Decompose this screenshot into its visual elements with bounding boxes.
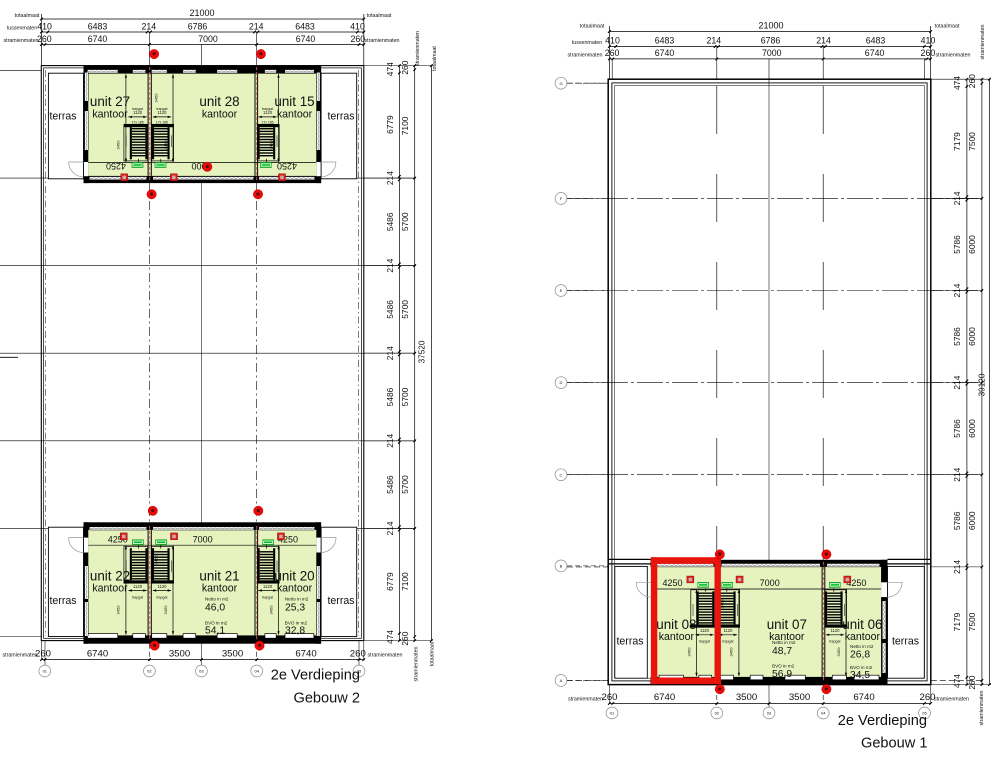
svg-text:kantoor: kantoor <box>659 631 695 643</box>
svg-text:54,1: 54,1 <box>205 626 225 637</box>
svg-text:4250: 4250 <box>106 161 126 171</box>
svg-text:3450: 3450 <box>268 140 273 150</box>
svg-text:3450: 3450 <box>154 555 159 565</box>
svg-text:stramienmaten: stramienmaten <box>979 690 985 725</box>
svg-text:260: 260 <box>967 74 977 88</box>
svg-text:B: B <box>560 564 563 569</box>
svg-text:kantoor: kantoor <box>845 631 881 643</box>
svg-text:terras: terras <box>616 636 643 648</box>
svg-text:Netto in m2: Netto in m2 <box>850 644 874 649</box>
svg-text:stramienmaten: stramienmaten <box>567 52 602 58</box>
svg-text:5486: 5486 <box>385 475 395 494</box>
svg-text:BVO in m2: BVO in m2 <box>772 663 795 668</box>
svg-text:7179: 7179 <box>952 612 962 631</box>
svg-text:7000: 7000 <box>198 34 218 44</box>
svg-text:3450: 3450 <box>163 140 168 150</box>
svg-text:260: 260 <box>350 648 366 659</box>
svg-text:21000: 21000 <box>758 21 783 31</box>
svg-text:7100: 7100 <box>400 572 410 591</box>
svg-text:totaalmaat: totaalmaat <box>432 46 438 71</box>
svg-text:kantoor: kantoor <box>202 583 238 595</box>
svg-text:260: 260 <box>605 48 620 58</box>
svg-text:2e Verdieping: 2e Verdieping <box>838 713 927 729</box>
svg-text:tussenmaten: tussenmaten <box>572 40 602 46</box>
svg-text:04: 04 <box>821 711 826 716</box>
svg-text:37520: 37520 <box>417 340 426 363</box>
svg-text:32,8: 32,8 <box>285 626 305 637</box>
svg-text:17x 185: 17x 185 <box>156 120 168 124</box>
svg-text:4250: 4250 <box>662 578 682 588</box>
svg-text:6740: 6740 <box>655 48 675 58</box>
svg-text:6740: 6740 <box>865 48 885 58</box>
svg-text:410: 410 <box>350 21 365 31</box>
svg-text:3450: 3450 <box>116 140 121 150</box>
svg-text:1120: 1120 <box>830 628 840 633</box>
svg-text:34,5: 34,5 <box>850 670 870 681</box>
svg-text:BVO in m2: BVO in m2 <box>850 665 873 670</box>
svg-text:3450: 3450 <box>163 605 168 615</box>
svg-text:46,0: 46,0 <box>205 602 225 613</box>
svg-text:A: A <box>560 678 563 683</box>
svg-text:6779: 6779 <box>385 115 395 134</box>
svg-text:7500: 7500 <box>967 132 977 151</box>
svg-text:stramienmaten: stramienmaten <box>415 31 421 66</box>
svg-text:G: G <box>559 81 562 86</box>
svg-text:Netto in m2: Netto in m2 <box>285 597 309 602</box>
svg-text:D: D <box>560 380 563 385</box>
svg-text:stramienmaten: stramienmaten <box>2 653 37 659</box>
svg-text:totaalmaat: totaalmaat <box>430 641 436 666</box>
svg-text:terras: terras <box>327 111 354 123</box>
svg-text:39120: 39120 <box>978 373 987 396</box>
svg-text:trapgat: trapgat <box>699 640 710 644</box>
svg-text:214: 214 <box>816 36 831 46</box>
svg-text:17x 185: 17x 185 <box>132 120 144 124</box>
svg-text:E: E <box>560 288 563 293</box>
svg-text:trapgat: trapgat <box>722 640 733 644</box>
svg-text:unit 21: unit 21 <box>199 569 239 584</box>
svg-text:unit 28: unit 28 <box>199 94 239 109</box>
svg-text:474: 474 <box>385 62 395 76</box>
svg-text:5700: 5700 <box>400 475 410 494</box>
svg-text:stramienmaten: stramienmaten <box>935 52 970 58</box>
svg-text:unit 08: unit 08 <box>656 617 696 632</box>
svg-text:6740: 6740 <box>295 648 316 659</box>
svg-text:unit 06: unit 06 <box>842 617 882 632</box>
svg-text:terras: terras <box>49 111 76 123</box>
svg-text:5700: 5700 <box>400 212 410 231</box>
svg-text:stramienmaten: stramienmaten <box>367 653 402 659</box>
svg-text:5786: 5786 <box>952 419 962 438</box>
svg-text:5700: 5700 <box>400 387 410 406</box>
svg-text:410: 410 <box>37 21 52 31</box>
svg-text:3450: 3450 <box>836 647 841 657</box>
svg-text:26,8: 26,8 <box>850 649 870 660</box>
svg-text:6000: 6000 <box>967 235 977 254</box>
svg-text:7000: 7000 <box>760 578 780 588</box>
svg-text:3500: 3500 <box>736 692 757 703</box>
svg-text:6740: 6740 <box>654 692 675 703</box>
svg-text:6483: 6483 <box>866 36 886 46</box>
svg-text:totaalmaat: totaalmaat <box>367 13 392 19</box>
svg-text:terras: terras <box>49 595 76 607</box>
svg-text:kantoor: kantoor <box>92 583 128 595</box>
svg-text:stramienmaten: stramienmaten <box>3 38 38 44</box>
svg-text:unit 22: unit 22 <box>90 569 130 584</box>
svg-text:260: 260 <box>967 675 977 689</box>
svg-text:474: 474 <box>385 630 395 644</box>
svg-text:04: 04 <box>254 669 259 674</box>
svg-text:5786: 5786 <box>952 327 962 346</box>
svg-text:trapgat: trapgat <box>132 596 143 600</box>
svg-text:02: 02 <box>715 711 720 716</box>
svg-text:474: 474 <box>952 674 962 688</box>
svg-text:stramienmaten: stramienmaten <box>934 696 969 702</box>
svg-text:01: 01 <box>43 669 48 674</box>
svg-text:totaalmaat: totaalmaat <box>580 24 605 30</box>
svg-text:3450: 3450 <box>116 605 121 615</box>
svg-text:3450: 3450 <box>686 647 691 657</box>
svg-text:6779: 6779 <box>385 572 395 591</box>
svg-text:21000: 21000 <box>189 8 214 18</box>
svg-text:6786: 6786 <box>188 21 208 31</box>
svg-text:stramienmaten: stramienmaten <box>364 38 399 44</box>
svg-text:unit 15: unit 15 <box>274 94 314 109</box>
svg-text:17x 185: 17x 185 <box>261 120 273 124</box>
svg-text:Netto in m2: Netto in m2 <box>205 597 229 602</box>
svg-text:6786: 6786 <box>761 36 781 46</box>
svg-text:214: 214 <box>141 21 156 31</box>
svg-text:5786: 5786 <box>952 511 962 530</box>
svg-text:kantoor: kantoor <box>202 109 238 121</box>
svg-text:1120: 1120 <box>263 584 273 589</box>
svg-text:stramienmaten: stramienmaten <box>980 24 986 59</box>
svg-text:5486: 5486 <box>385 300 395 319</box>
svg-text:totaalmaat: totaalmaat <box>935 24 960 30</box>
svg-text:3450: 3450 <box>729 647 734 657</box>
svg-text:5700: 5700 <box>400 300 410 319</box>
svg-text:5486: 5486 <box>385 212 395 231</box>
svg-text:6740: 6740 <box>853 692 874 703</box>
svg-text:unit 07: unit 07 <box>767 617 807 632</box>
svg-text:7100: 7100 <box>400 116 410 135</box>
svg-text:6000: 6000 <box>967 327 977 346</box>
svg-text:Gebouw 2: Gebouw 2 <box>293 691 360 707</box>
svg-text:260: 260 <box>400 631 410 645</box>
svg-text:terras: terras <box>892 636 919 648</box>
svg-text:2e Verdieping: 2e Verdieping <box>271 668 360 684</box>
svg-text:7000: 7000 <box>193 535 213 545</box>
svg-text:trapgat: trapgat <box>262 596 273 600</box>
svg-text:stramienmaten: stramienmaten <box>568 696 603 702</box>
svg-text:kantoor: kantoor <box>92 109 128 121</box>
svg-text:stramienmaten: stramienmaten <box>414 646 420 681</box>
svg-text:6483: 6483 <box>655 36 675 46</box>
svg-text:6000: 6000 <box>967 419 977 438</box>
svg-text:214: 214 <box>706 36 721 46</box>
svg-text:trapgat: trapgat <box>829 640 840 644</box>
svg-text:6740: 6740 <box>296 34 316 44</box>
svg-text:Netto in m2: Netto in m2 <box>772 640 796 645</box>
svg-text:6483: 6483 <box>88 21 108 31</box>
svg-text:02: 02 <box>147 669 152 674</box>
svg-text:trapgat: trapgat <box>156 107 167 111</box>
svg-text:260: 260 <box>350 34 365 44</box>
svg-text:260: 260 <box>37 34 52 44</box>
svg-text:48,7: 48,7 <box>772 646 792 657</box>
svg-text:6740: 6740 <box>87 648 108 659</box>
svg-text:3500: 3500 <box>222 648 243 659</box>
svg-text:kantoor: kantoor <box>277 109 313 121</box>
svg-text:410: 410 <box>921 36 936 46</box>
svg-text:6000: 6000 <box>967 511 977 530</box>
svg-text:1120: 1120 <box>157 584 167 589</box>
svg-text:7179: 7179 <box>952 132 962 151</box>
svg-text:unit 20: unit 20 <box>274 569 314 584</box>
svg-text:410: 410 <box>605 36 620 46</box>
svg-text:totaalmaat: totaalmaat <box>15 13 40 19</box>
svg-text:4250: 4250 <box>277 161 297 171</box>
svg-text:tussenmaten: tussenmaten <box>7 26 37 32</box>
svg-text:trapgat: trapgat <box>262 107 273 111</box>
svg-text:260: 260 <box>921 48 936 58</box>
svg-text:6483: 6483 <box>295 21 315 31</box>
svg-text:214: 214 <box>249 21 264 31</box>
svg-text:5786: 5786 <box>952 235 962 254</box>
svg-text:trapgat: trapgat <box>156 596 167 600</box>
svg-text:25,3: 25,3 <box>285 602 305 613</box>
svg-text:3500: 3500 <box>169 648 190 659</box>
svg-text:Gebouw 1: Gebouw 1 <box>861 736 928 752</box>
svg-text:3450: 3450 <box>154 93 159 103</box>
svg-text:1120: 1120 <box>700 628 710 633</box>
svg-text:7000: 7000 <box>762 48 782 58</box>
svg-text:01: 01 <box>610 711 615 716</box>
svg-text:03: 03 <box>199 669 204 674</box>
svg-text:474: 474 <box>952 76 962 90</box>
svg-text:56,9: 56,9 <box>772 669 792 680</box>
svg-text:260: 260 <box>400 60 410 74</box>
svg-text:terras: terras <box>327 595 354 607</box>
svg-text:5486: 5486 <box>385 387 395 406</box>
svg-text:03: 03 <box>767 711 772 716</box>
svg-text:1120: 1120 <box>133 584 143 589</box>
svg-text:trapgat: trapgat <box>132 107 143 111</box>
svg-text:kantoor: kantoor <box>277 583 313 595</box>
svg-text:3450: 3450 <box>268 605 273 615</box>
svg-text:6740: 6740 <box>88 34 108 44</box>
svg-text:1120: 1120 <box>723 628 733 633</box>
svg-text:C: C <box>560 472 563 477</box>
svg-text:3500: 3500 <box>789 692 810 703</box>
svg-text:7500: 7500 <box>967 612 977 631</box>
svg-text:unit 27: unit 27 <box>90 94 130 109</box>
